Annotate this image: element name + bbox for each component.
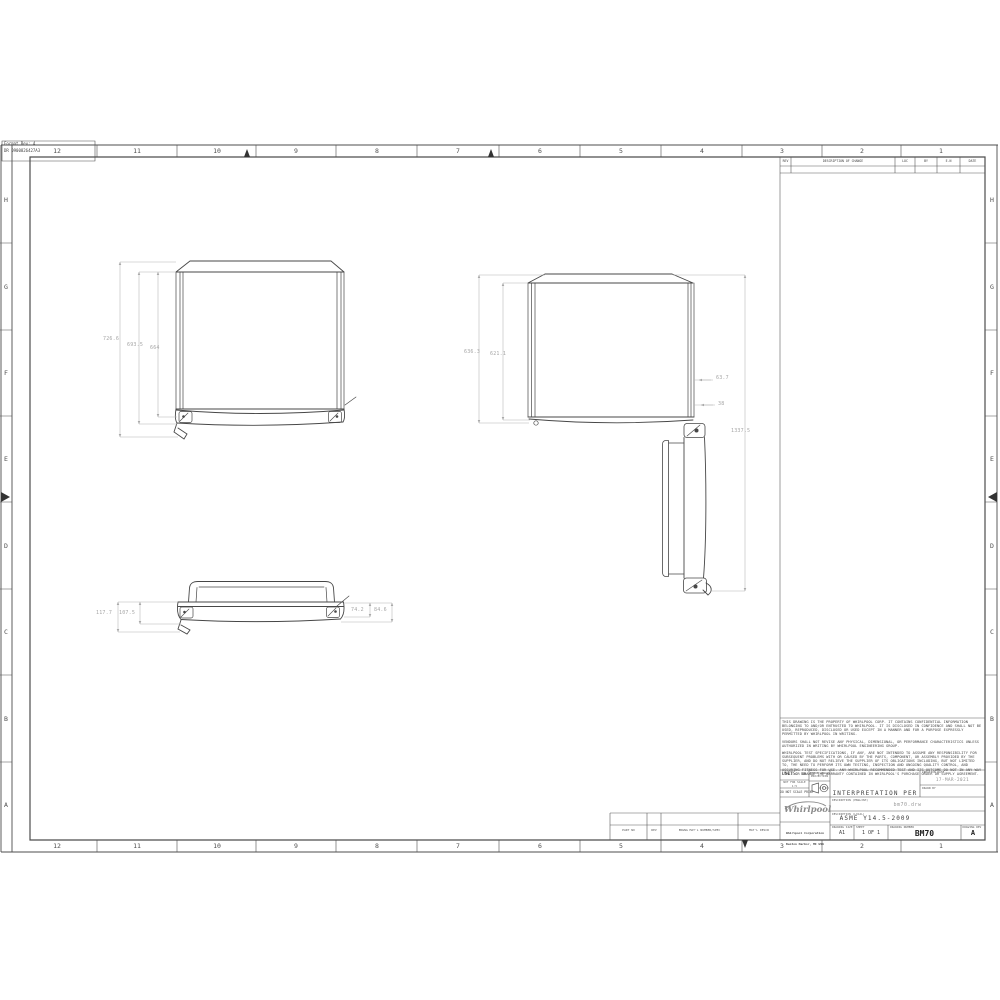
zone-col-bot-11: 11 [125, 841, 149, 851]
whirlpool-logo: Whirlpool [781, 800, 829, 820]
rev-table-col-en: E.N [937, 157, 960, 165]
rev-table-col-date: DATE [960, 157, 985, 165]
parts-col-matl-descr: MAT'L DESCR [738, 828, 780, 832]
zone-col-top-9: 9 [284, 146, 308, 156]
zone-col-top-1: 1 [929, 146, 953, 156]
description-english-value: bm70.drw [830, 802, 985, 808]
company-city-line: Benton Harbor, MI USA [781, 843, 829, 847]
drawing-rev-value: A [961, 829, 985, 837]
rev-table-col-by: BY [915, 157, 937, 165]
zone-col-bot-6: 6 [528, 841, 552, 851]
whirlpool-logo-swoosh-icon [781, 800, 829, 820]
zone-col-bot-10: 10 [205, 841, 229, 851]
zone-col-top-4: 4 [690, 146, 714, 156]
zone-col-top-7: 7 [446, 146, 470, 156]
parts-col-matl-number: ENGNG MAT'L NUMBER/SPEC [661, 828, 738, 832]
zone-col-bot-7: 7 [446, 841, 470, 851]
zone-row-left-h: H [1, 195, 11, 205]
rev-table-col-loc: LOC [895, 157, 915, 165]
side-view-geometry [528, 274, 711, 595]
units-label: UNITS: mm [782, 772, 806, 777]
zone-row-left-a: A [1, 800, 11, 810]
creation-date-label: CREATION DATE [922, 771, 944, 774]
zone-row-left-c: C [1, 627, 11, 637]
engineering-drawing-sheet: Format Rev: 4 DR 0900826427A3 12 11 10 9… [0, 0, 1000, 1000]
note-paragraph-1: THIS DRAWING IS THE PROPERTY OF WHIRLPOO… [782, 720, 982, 737]
zone-col-bot-8: 8 [365, 841, 389, 851]
front-view-geometry [174, 261, 356, 439]
bottom-view-geometry [177, 582, 349, 635]
description-local-label: DESCRIPTION (LOCAL) [832, 813, 865, 816]
zone-row-left-g: G [1, 282, 11, 292]
front-view-dim-mid-height: 693.5 [127, 342, 143, 348]
zone-col-bot-4: 4 [690, 841, 714, 851]
bottom-view-dim-right-outer: 84.6 [374, 607, 387, 613]
zone-col-top-5: 5 [609, 146, 633, 156]
drawing-size-value: A1 [830, 830, 854, 836]
zone-col-bot-2: 2 [850, 841, 874, 851]
zone-col-top-2: 2 [850, 146, 874, 156]
drawing-number-value: BM70 [888, 829, 961, 838]
do-not-scale-label: DO NOT SCALE PRINT [780, 790, 809, 794]
side-view-dim-inner-height: 621.1 [490, 351, 506, 357]
drawing-size-label: DRAWING SIZE [832, 826, 853, 829]
format-number-line: DR 0900826427A3 [4, 149, 40, 154]
zone-row-right-b: B [987, 714, 997, 724]
scale-note-line2: 1:5 [781, 785, 808, 788]
zone-row-left-f: F [1, 368, 11, 378]
rev-table-col-rev: REV [780, 157, 791, 165]
company-address: Whirlpool Corporation Benton Harbor, MI … [781, 824, 829, 854]
front-view-dim-overall-height: 726.6 [103, 336, 119, 342]
creation-date-value: 17-MAR-2021 [922, 777, 983, 782]
bottom-view-dim-right-inner: 74.2 [351, 607, 364, 613]
format-rev-line: Format Rev: 4 [4, 142, 35, 147]
zone-col-bot-5: 5 [609, 841, 633, 851]
zone-row-left-d: D [1, 541, 11, 551]
zone-col-top-10: 10 [205, 146, 229, 156]
zone-col-top-11: 11 [125, 146, 149, 156]
zone-row-right-g: G [987, 282, 997, 292]
side-view-dim-overall-height: 636.3 [464, 349, 480, 355]
bottom-view-dim-left-outer: 117.7 [96, 610, 112, 616]
zone-row-right-f: F [987, 368, 997, 378]
zone-col-bot-12: 12 [45, 841, 69, 851]
zone-col-top-6: 6 [528, 146, 552, 156]
side-view-dim-door-offset: 63.7 [716, 375, 729, 381]
side-view-dim-open-height: 1337.5 [731, 428, 750, 434]
parts-col-part-no: PART NO [610, 828, 647, 832]
zone-col-top-12: 12 [45, 146, 69, 156]
note-paragraph-2: VENDORS SHALL NOT REVISE ANY PHYSICAL, D… [782, 740, 982, 748]
sheet-label: SHEET [856, 826, 865, 829]
sheet-value: 1 OF 1 [854, 830, 888, 836]
zone-col-bot-1: 1 [929, 841, 953, 851]
zone-col-bot-9: 9 [284, 841, 308, 851]
front-view-dimensions [120, 262, 178, 437]
company-name-line: Whirlpool Corporation [781, 832, 829, 836]
side-view-dim-door-gap: 38 [718, 401, 724, 407]
zone-row-right-d: D [987, 541, 997, 551]
zone-row-right-e: E [987, 454, 997, 464]
zone-col-top-3: 3 [770, 146, 794, 156]
third-angle-projection-icon [811, 782, 829, 794]
zone-row-left-b: B [1, 714, 11, 724]
interpretation-line1: INTERPRETATION PER [831, 790, 919, 799]
interpretation-line2: ASME Y14.5-2009 [831, 815, 919, 824]
parts-col-rev: REV [647, 828, 661, 832]
front-view-dim-inner-height: 664 [150, 345, 160, 351]
rev-table-col-desc: DESCRIPTION OF CHANGE [791, 157, 895, 165]
zone-row-left-e: E [1, 454, 11, 464]
zone-row-right-a: A [987, 800, 997, 810]
zone-row-right-c: C [987, 627, 997, 637]
third-angle-label: THIRD ANGLE PROJECTION [810, 772, 829, 779]
bottom-view-dim-left-inner: 107.5 [119, 610, 135, 616]
drawn-by-label: DRAWN BY [922, 787, 936, 790]
zone-col-top-8: 8 [365, 146, 389, 156]
zone-row-right-h: H [987, 195, 997, 205]
